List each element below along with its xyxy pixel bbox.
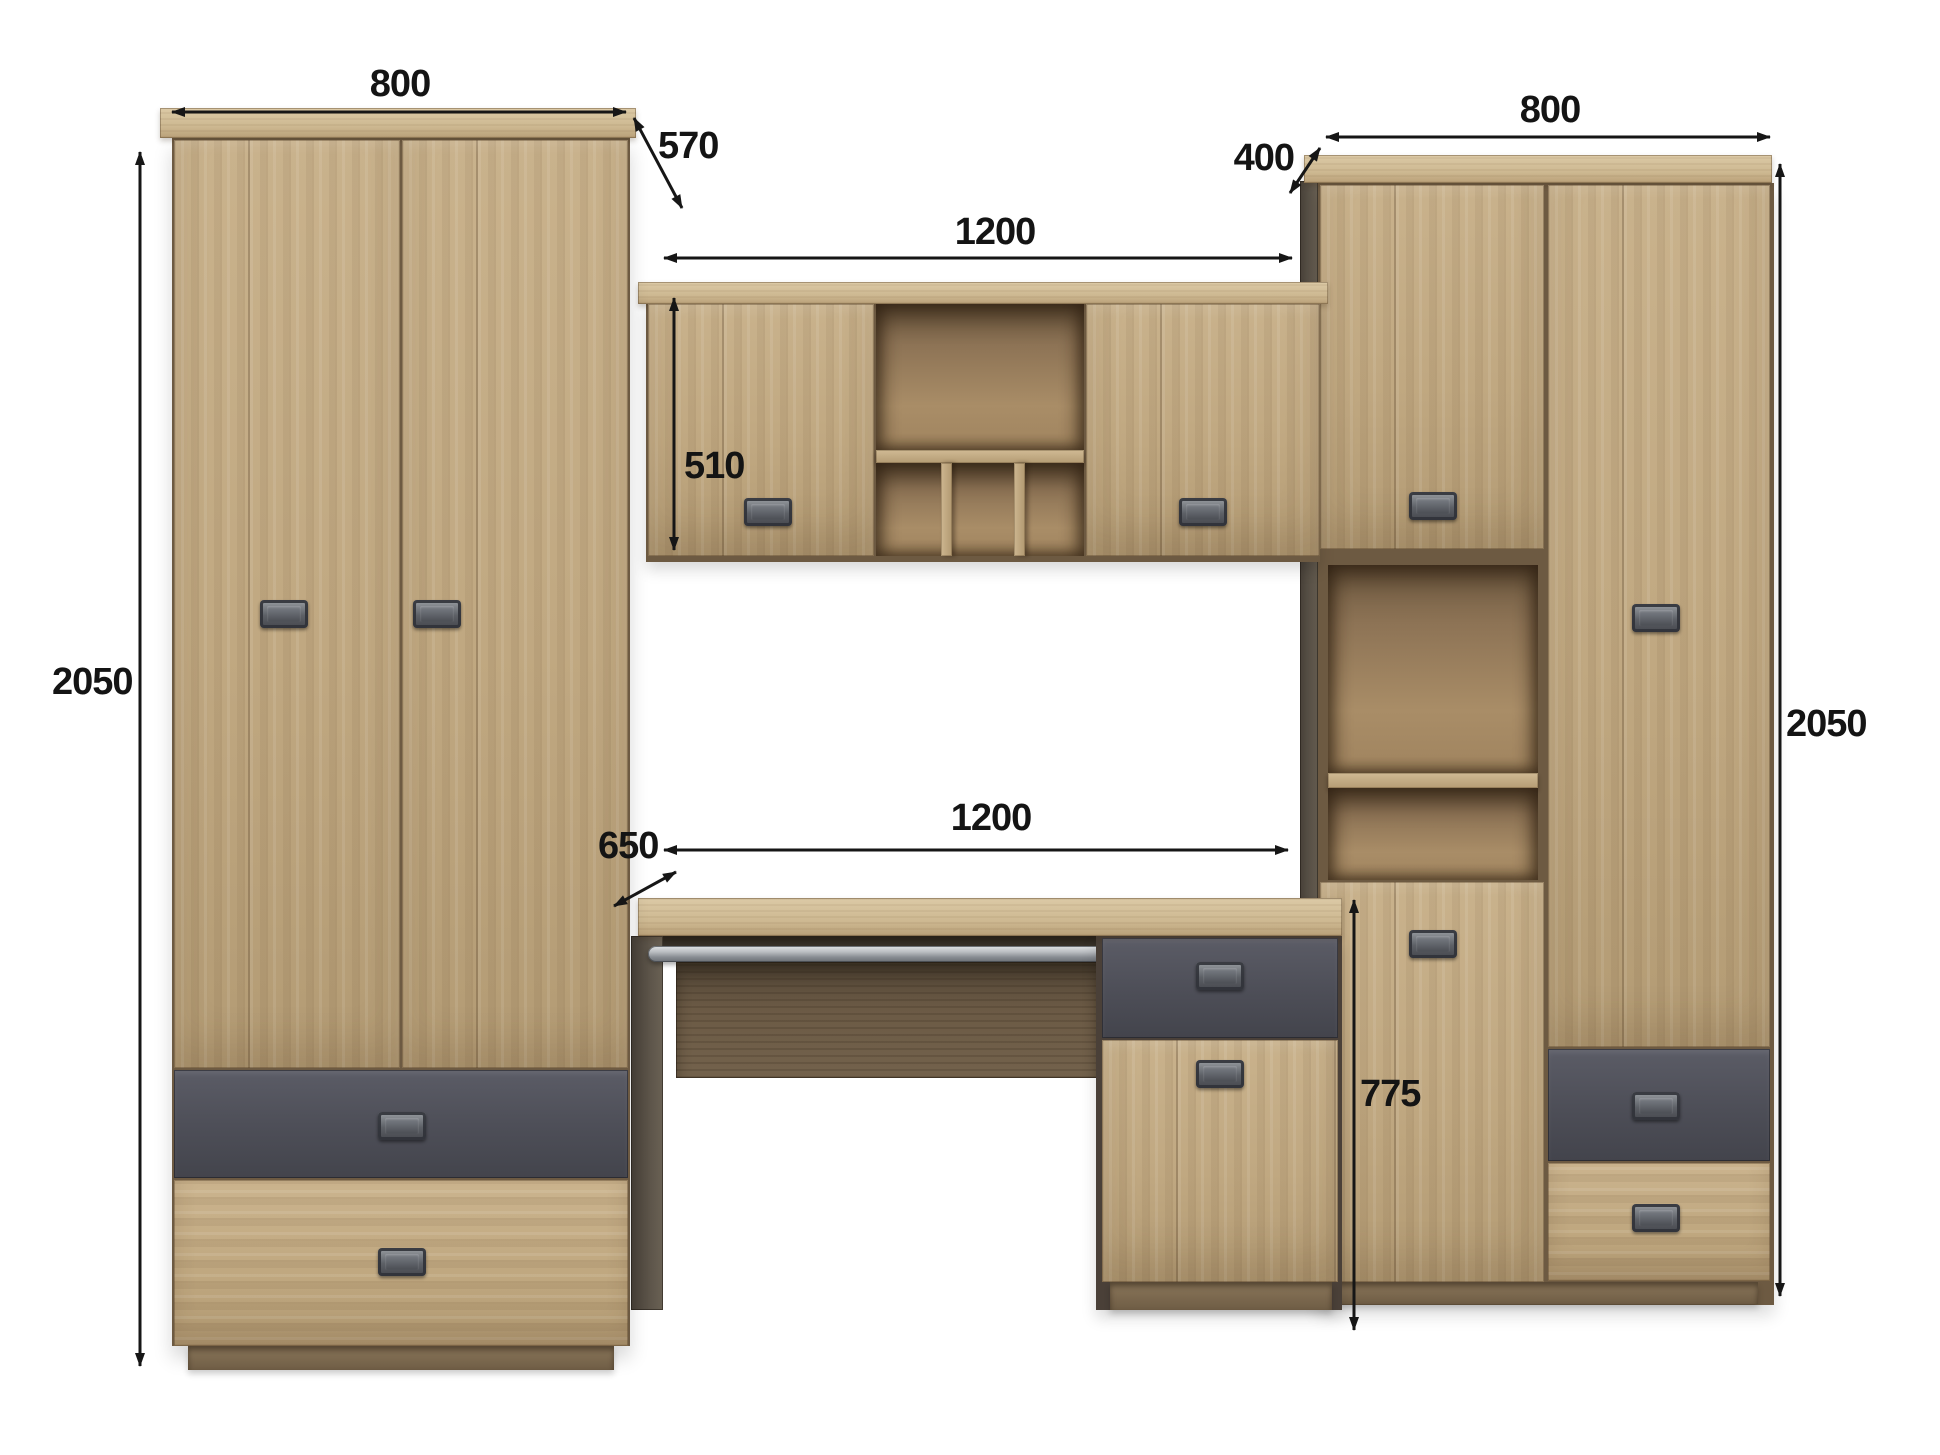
dimension-arrows	[0, 0, 1940, 1455]
dim-arrow-desk-depth	[614, 872, 676, 906]
furniture-dimension-diagram: 800 570 2050 1200 510 400 800 2050 650 1…	[0, 0, 1940, 1455]
dim-arrow-left-wardrobe-depth	[634, 118, 682, 208]
dim-arrow-right-cabinet-depth	[1290, 148, 1320, 193]
